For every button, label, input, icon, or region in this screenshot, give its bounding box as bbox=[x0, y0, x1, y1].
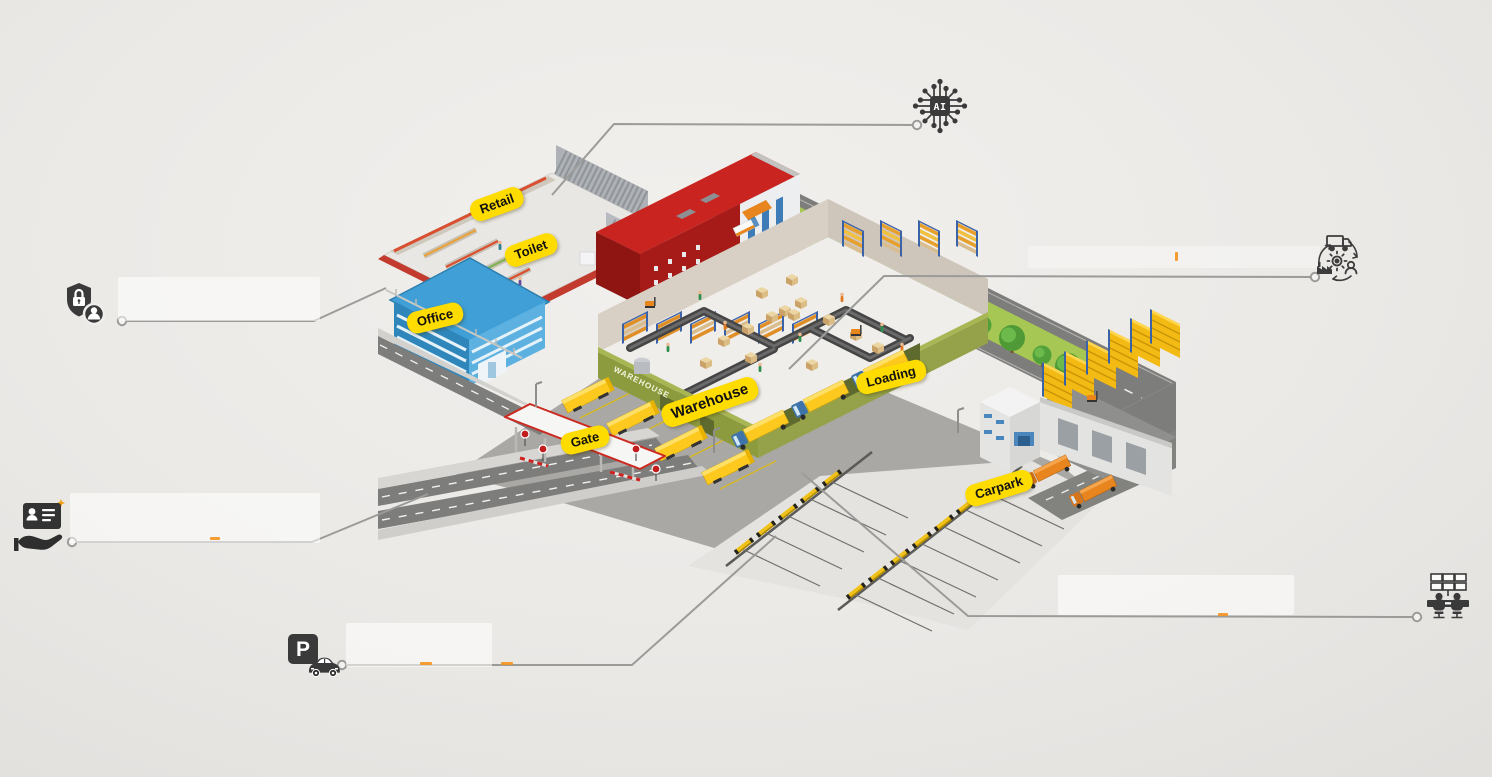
supply-chain-cycle-icon[interactable] bbox=[1307, 230, 1371, 299]
faded-caption-box bbox=[1028, 246, 1320, 268]
parking-car-icon[interactable]: P bbox=[286, 632, 340, 683]
ai-chip-text: AI bbox=[933, 102, 946, 113]
control-room-icon[interactable] bbox=[1418, 572, 1478, 633]
stray-mark bbox=[1218, 613, 1228, 616]
stray-mark bbox=[210, 537, 220, 540]
faded-caption-box bbox=[346, 623, 492, 667]
stray-mark bbox=[501, 662, 513, 665]
stray-mark bbox=[420, 662, 432, 665]
facility-map-stage: WAREHOUSE bbox=[0, 0, 1492, 777]
security-access-icon[interactable] bbox=[60, 278, 112, 335]
id-badge-hand-icon[interactable] bbox=[14, 498, 72, 561]
parking-sign-text: P bbox=[296, 638, 310, 661]
faded-caption-box bbox=[1058, 575, 1294, 615]
stray-mark bbox=[1175, 252, 1178, 261]
faded-caption-box bbox=[118, 277, 320, 321]
faded-caption-box bbox=[70, 493, 320, 543]
ai-chip-icon[interactable]: AI bbox=[912, 78, 968, 139]
